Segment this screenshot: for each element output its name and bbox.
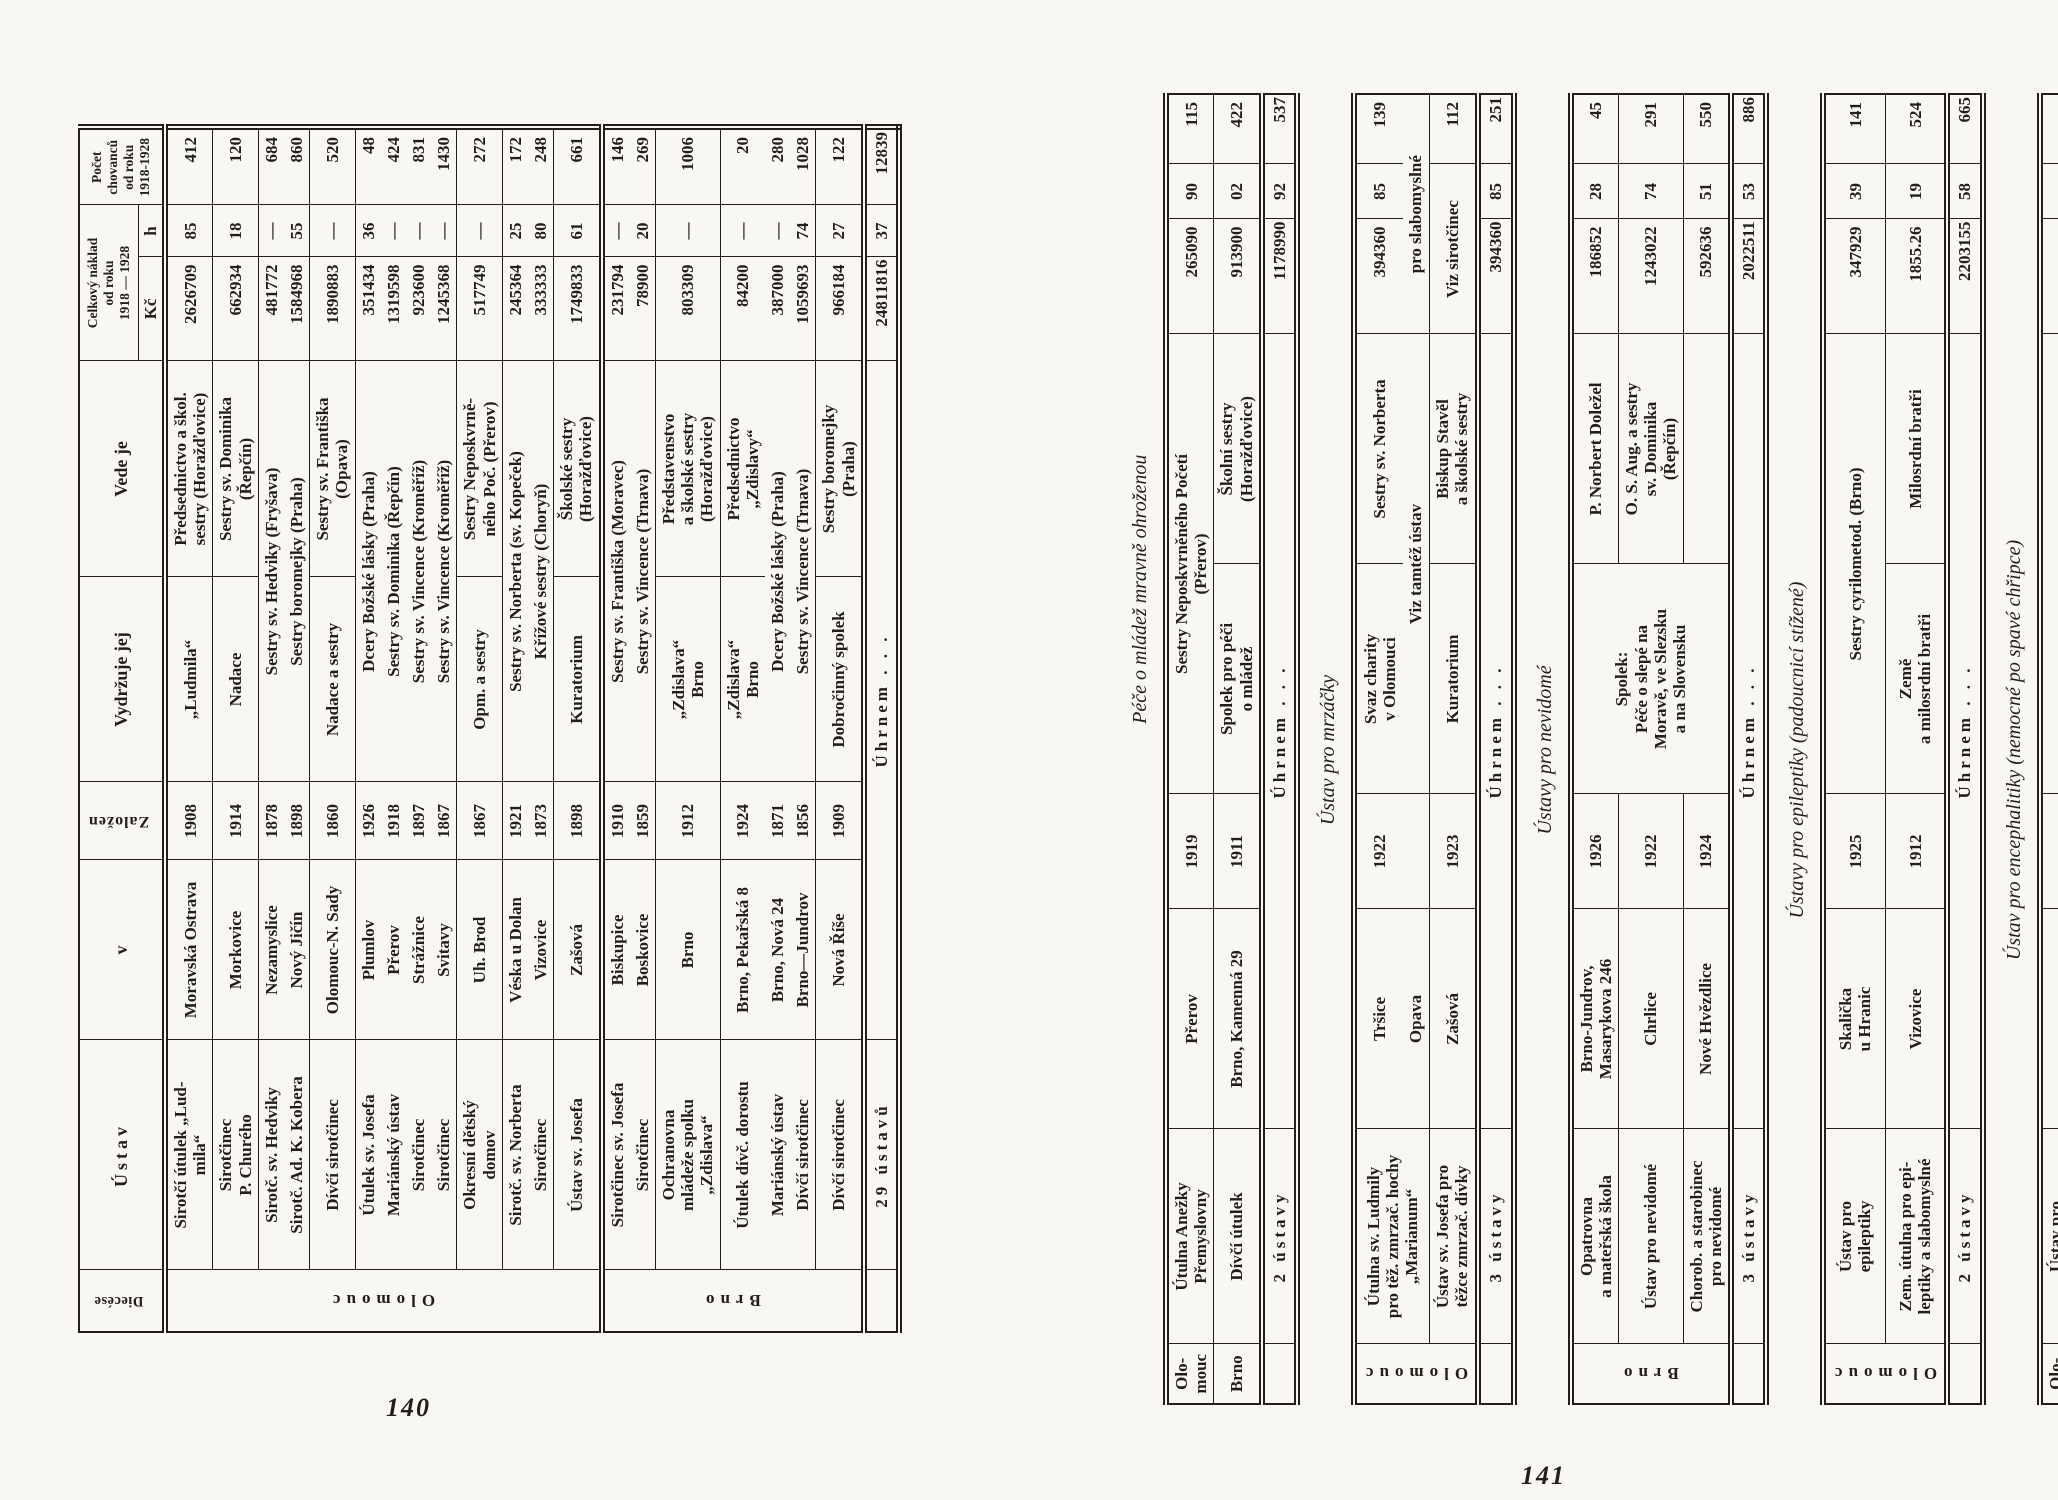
cell: 80	[528, 205, 554, 257]
cell: 186852	[1571, 219, 1619, 334]
cell: 966184	[816, 257, 864, 361]
total-label: Úhrnem . . .	[1262, 334, 1297, 1129]
cell: Školské sestry(Horažďovice)	[554, 361, 602, 577]
table-row: Dívčí sirotčinecOlomouc-N. Sady1860Nadac…	[310, 127, 355, 1332]
total-count: 29 ústavů	[864, 1040, 899, 1270]
cell: Kuratorium	[554, 577, 602, 782]
cell: 20	[720, 127, 765, 205]
section-title: Péče o mládež mravně ohroženou	[1128, 95, 1153, 1405]
table-row: SirotčinecBoskovice1859Sestry sv. Vincen…	[630, 127, 656, 1332]
cell: 1910	[602, 782, 630, 860]
cell: 1925	[1823, 794, 1885, 909]
encephalitis-institute-table: Olo-moucÚstav proencephalitikyVelehrad19…	[2037, 93, 2058, 1405]
cell: 248	[528, 127, 554, 205]
cell: Skaličkau Hranic	[1823, 909, 1885, 1129]
cell: 51	[1683, 164, 1731, 219]
cell	[1478, 1344, 1513, 1404]
cell: 831	[406, 127, 431, 205]
cell: —	[381, 205, 406, 257]
cell: Nezamyslice	[258, 860, 284, 1040]
table-row: OlomoucÚtulna sv. Ludmilypro těž. zmrzač…	[1354, 94, 1403, 1404]
cell: 1243022	[1618, 219, 1683, 334]
cell: Útulna AnežkyPřemyslovny	[1166, 1129, 1214, 1344]
cell: 265090	[1166, 219, 1214, 334]
cell: „Ludmila“	[165, 577, 213, 782]
cell: Mariánský ústav	[381, 1040, 406, 1270]
cell: Sirotč. sv. Norberta	[502, 1040, 528, 1270]
cell: O. S. Aug. a sestrysv. Dominika(Řepčín)	[1618, 334, 1683, 564]
cell: 1922	[1618, 794, 1683, 909]
table-row: Ústav sv. Josefa protěžce zmrzač. dívkyZ…	[1429, 94, 1478, 1404]
cell: Morkovice	[213, 860, 258, 1040]
total-pocet: 12839	[864, 127, 899, 205]
cell: 39	[1823, 164, 1885, 219]
rotated-label: Olomouc	[327, 1291, 435, 1310]
cell: Sestry sv. Norberta (sv. Kopeček)	[502, 361, 528, 782]
cell: 139	[1354, 94, 1403, 164]
rotated-label: Olomouc	[1829, 1364, 1937, 1383]
table-row: 3 ústavyÚhrnem . . .39436085251	[1478, 94, 1513, 1404]
cell: 84200	[720, 257, 765, 361]
cell: Sirotč. sv. Hedviky	[258, 1040, 284, 1270]
cell: 90	[1166, 164, 1214, 219]
cell: 860	[284, 127, 310, 205]
cell: Zašová	[1429, 909, 1478, 1129]
table-row: BrnoSirotčinec sv. JosefaBiskupice1910Se…	[602, 127, 630, 1332]
table-row: Mariánský ústavBrno, Nová 241871Dcery Bo…	[765, 127, 790, 1332]
table-row: Sirotč. sv. HedvikyNezamyslice1878Sestry…	[258, 127, 284, 1332]
cell: 424	[381, 127, 406, 205]
cell: Zem. útulna pro epi-leptiky a slabomysln…	[1885, 1129, 1947, 1344]
cell: Biskupice	[602, 860, 630, 1040]
cell: 19	[1885, 164, 1947, 219]
cell: Sirotčí útulek „Lud-mila“	[165, 1040, 213, 1270]
cell: 1908	[165, 782, 213, 860]
cell: 70	[2040, 94, 2058, 164]
cell: 1912	[1885, 794, 1947, 909]
cell	[1403, 794, 1429, 909]
cell: Opm. a sestry	[457, 577, 502, 782]
cell: Sestry sv. Františka(Opava)	[310, 361, 355, 577]
cell	[1262, 1344, 1297, 1404]
cell: 1921	[502, 782, 528, 860]
cell: 25	[502, 205, 528, 257]
cell: 61	[554, 205, 602, 257]
cell: Spolek:Péče o slepé naMoravě, ve Slezsku…	[1571, 564, 1731, 794]
cell: —	[2040, 164, 2058, 219]
cell: Zeměa milosrdní bratři	[1885, 564, 1947, 794]
table-row: OlomoucÚstav proepileptikySkaličkau Hran…	[1823, 94, 1885, 1404]
cell: 112	[1429, 94, 1478, 164]
cell: 1319598	[381, 257, 406, 361]
cell: 27	[816, 205, 864, 257]
cell: Vizovice	[528, 860, 554, 1040]
cell: 55	[284, 205, 310, 257]
cell: Přerov	[1166, 909, 1214, 1129]
cell: 1918	[381, 782, 406, 860]
cell: 1898	[284, 782, 310, 860]
left-table-mount: DiecéseÚstavvZaloženVydržuje jejVede jeC…	[78, 128, 902, 1333]
section-title: Ústavy pro epileptiky (padoucnicí stížen…	[1785, 95, 1810, 1405]
cell: Sestry Neposkvrně-ného Poč. (Přerov)	[457, 361, 502, 577]
cell: 550	[1683, 94, 1731, 164]
cell: Sestry cyrilometod. (Brno)	[1823, 334, 1885, 794]
total-label: Úhrnem . . .	[1478, 334, 1513, 1129]
cell: 1926	[1571, 794, 1619, 909]
cell: 1911	[1214, 794, 1262, 909]
table-row: Olo-moucÚstav proencephalitikyVelehrad19…	[2040, 94, 2058, 1404]
table-row: Zem. útulna pro epi-leptiky a slabomysln…	[1885, 94, 1947, 1404]
cell: Brno-Jundrov,Masarykova 246	[1571, 909, 1619, 1129]
col-header-zalozen: Založen	[79, 782, 165, 860]
cell: 141	[1823, 94, 1885, 164]
cell: Viz tamtéž ústav	[1403, 334, 1429, 794]
cell: 1856	[790, 782, 816, 860]
diocese-label: Olomouc	[1354, 1344, 1478, 1404]
cell: 1006	[656, 127, 721, 205]
cell: Svitavy	[431, 860, 457, 1040]
cell: Kuratorium	[1429, 564, 1478, 794]
cell: 269	[630, 127, 656, 205]
cell: Svaz charityv Olomouci	[1354, 564, 1403, 794]
cell: Sestry Neposkvrněného Početí(Přerov)	[1166, 334, 1214, 794]
cell: 85	[1354, 164, 1403, 219]
cell: Uh. Brod	[457, 860, 502, 1040]
cell: Představenstvoa školské sestry(Horažďovi…	[656, 361, 721, 577]
cell: 1178990	[1262, 219, 1297, 334]
diocese-label: Brno	[602, 1270, 864, 1332]
cell: Předsednictvo„Zdislavy“	[720, 361, 765, 577]
cell: Boskovice	[630, 860, 656, 1040]
table-row: Sirotč. Ad. K. KoberaNový Jičín1898Sestr…	[284, 127, 310, 1332]
cell: 592636	[1683, 219, 1731, 334]
cell: —	[720, 205, 765, 257]
table-row: Ochranovnamládeže spolku„Zdislava“Brno19…	[656, 127, 721, 1332]
cell: 291	[1618, 94, 1683, 164]
rotated-label: Olomouc	[1360, 1364, 1468, 1383]
cell: Sirotčinec	[528, 1040, 554, 1270]
total-label: Úhrnem . . .	[864, 361, 899, 1040]
table-row: Dívčí sirotčinecNová Říše1909Dobročinný …	[816, 127, 864, 1332]
cell: Nadace a sestry	[310, 577, 355, 782]
cell: 412	[165, 127, 213, 205]
rotated-label: Brno	[700, 1291, 761, 1310]
cell: Sirotčinec	[630, 1040, 656, 1270]
table-row: Dívčí sirotčinecBrno—Jundrov1856Sestry s…	[790, 127, 816, 1332]
table-row: OlomoucSirotčí útulek „Lud-mila“Moravská…	[165, 127, 213, 1332]
rotated-label: Založen	[88, 812, 149, 830]
total-h: 37	[864, 205, 899, 257]
cell: Sirotč. Ad. K. Kobera	[284, 1040, 310, 1270]
cell: 1914	[213, 782, 258, 860]
cell: Vizovice	[1885, 909, 1947, 1129]
col-header-vede: Vede je	[79, 361, 165, 577]
cell: 1890883	[310, 257, 355, 361]
cell: 85	[165, 205, 213, 257]
cell: 251	[1478, 94, 1513, 164]
table-row: DiecéseÚstavvZaloženVydržuje jejVede jeC…	[79, 127, 138, 1332]
cell: Dcery Božské lásky (Praha)	[765, 361, 790, 782]
col-header-pocet: Početchovancůod roku1918-1928	[79, 127, 165, 205]
cell: 45	[1571, 94, 1619, 164]
table-row: Útulek dívč. dorostuBrno, Pekařská 81924…	[720, 127, 765, 1332]
col-header-diecese: Diecése	[79, 1270, 165, 1332]
cell: Dívčí sirotčinec	[790, 1040, 816, 1270]
cell: Mariánský ústav	[765, 1040, 790, 1270]
cell: Nový Jičín	[284, 860, 310, 1040]
cell: Velehrad	[2040, 909, 2058, 1129]
cell	[1683, 334, 1731, 564]
cell: 662934	[213, 257, 258, 361]
table-row: Ústav sv. JosefaZašová1898KuratoriumŠkol…	[554, 127, 602, 1332]
cell: 1919	[1166, 794, 1214, 909]
cell: 1867	[431, 782, 457, 860]
cell: 684	[258, 127, 284, 205]
cell: 1430	[431, 127, 457, 205]
table-row: BrnoDívčí útulekBrno, Kamenná 291911Spol…	[1214, 94, 1262, 1404]
cell: Ústav sv. Josefa protěžce zmrzač. dívky	[1429, 1129, 1478, 1344]
cell: 537	[1262, 94, 1297, 164]
cell: —	[258, 205, 284, 257]
page-number-left: 140	[386, 1395, 431, 1421]
section-title: Ústavy pro nevidomé	[1533, 95, 1558, 1405]
col-header-kc: Kč	[138, 257, 165, 361]
cell: Brno, Pekařská 8	[720, 860, 765, 1040]
cell: —	[406, 205, 431, 257]
cell: Chrlice	[1618, 909, 1683, 1129]
cell: Brno, Nová 24	[765, 860, 790, 1040]
cell: 280	[765, 127, 790, 205]
cell: 1927	[2040, 794, 2058, 909]
diocese-label: Olomouc	[1823, 1344, 1947, 1404]
total-count: 3 ústavy	[1731, 1129, 1766, 1344]
cell: Plumlov	[355, 860, 381, 1040]
table-row: Mariánský ústavPřerov1918Sestry sv. Domi…	[381, 127, 406, 1332]
cell: Dívčí sirotčinec	[310, 1040, 355, 1270]
cell	[864, 1270, 899, 1332]
cell: Tršice	[1354, 909, 1403, 1129]
table-row: 2 ústavyÚhrnem . . .220315558665	[1947, 94, 1982, 1404]
cell: Dívčí útulek	[1214, 1129, 1262, 1344]
col-header-vydrzuje: Vydržuje jej	[79, 577, 165, 782]
cell: Sestry sv. Vincence (Kroměříž)	[431, 361, 457, 782]
table-row: SirotčinecSvitavy1867Sestry sv. Vincence…	[431, 127, 457, 1332]
cell: Sirotčinec	[431, 1040, 457, 1270]
cell: 1912	[656, 782, 721, 860]
cell: Véska u Dolan	[502, 860, 528, 1040]
cell: „Zdislava“Brno	[720, 577, 765, 782]
cell	[1731, 1344, 1766, 1404]
cell: 665	[1947, 94, 1982, 164]
cell: 1860	[310, 782, 355, 860]
cell: —	[765, 205, 790, 257]
cell: 48	[355, 127, 381, 205]
total-label: Úhrnem . . .	[1947, 334, 1982, 1129]
cell: 74	[1618, 164, 1683, 219]
total-count: 2 ústavy	[1262, 1129, 1297, 1344]
table-row: SirotčinecVizovice1873Křížové sestry (Ch…	[528, 127, 554, 1332]
cell: 333333	[528, 257, 554, 361]
epileptics-institutes-table: OlomoucÚstav proepileptikySkaličkau Hran…	[1820, 93, 1986, 1405]
cell: pro slabomyslné	[1403, 94, 1429, 334]
cell: Dívčí sirotčinec	[816, 1040, 864, 1270]
diocese-label: Brno	[1214, 1344, 1262, 1404]
cell: 1898	[554, 782, 602, 860]
cell	[1947, 1344, 1982, 1404]
cell: 1878	[258, 782, 284, 860]
cell: 394360	[1478, 219, 1513, 334]
cell: 2626709	[165, 257, 213, 361]
cell: 78900	[630, 257, 656, 361]
cell: Sirotčinec sv. Josefa	[602, 1040, 630, 1270]
cell: Nové Hvězdlice	[1683, 909, 1731, 1129]
col-header-ustav: Ústav	[79, 1040, 165, 1270]
cell: Brno—Jundrov	[790, 860, 816, 1040]
cell: 1873	[528, 782, 554, 860]
cell: 18	[213, 205, 258, 257]
cell: Opava	[1403, 909, 1429, 1129]
cell: 1859	[630, 782, 656, 860]
table-row: Útulek sv. JosefaPlumlov1926Dcery Božské…	[355, 127, 381, 1332]
table-row: 3 ústavyÚhrnem . . .202251153886	[1731, 94, 1766, 1404]
table-row: Okresní dětskýdomovUh. Brod1867Opm. a se…	[457, 127, 502, 1332]
cell: 115	[1166, 94, 1214, 164]
cell: Moravská Ostrava	[165, 860, 213, 1040]
cell: 422	[1214, 94, 1262, 164]
cripples-institute-table: OlomoucÚtulna sv. Ludmilypro těž. zmrzač…	[1351, 93, 1517, 1405]
cell: 20	[630, 205, 656, 257]
book-scan-spread: { "colors": { "paper": "#f9f7f2", "ink":…	[0, 0, 2058, 1500]
cell: Spolek pro péčio mládež	[1214, 564, 1262, 794]
table-row: SirotčinecStrážnice1897Sestry sv. Vincen…	[406, 127, 431, 1332]
cell: Ústav proencephalitiky	[2040, 1129, 2058, 1344]
cell: Útulek dívč. dorostu	[720, 1040, 765, 1270]
section-title: Ústav pro mrzáčky	[1316, 95, 1341, 1405]
cell: Milosrdní bratři	[1885, 334, 1947, 564]
cell: 351434	[355, 257, 381, 361]
cell: —	[457, 205, 502, 257]
cell: Dcery Božské lásky (Praha)	[355, 361, 381, 782]
diocese-label: Olo-mouc	[1166, 1344, 1214, 1404]
table-row: SirotčinecP. ChuréhoMorkovice1914NadaceS…	[213, 127, 258, 1332]
cell: 36	[355, 205, 381, 257]
cell: 1924	[1683, 794, 1731, 909]
cell: 803309	[656, 257, 721, 361]
cell: 1584968	[284, 257, 310, 361]
cell: Sestry sv. Vincence (Kroměříž)	[406, 361, 431, 782]
cell: Sestry sv. Dominika (Řepčín)	[381, 361, 406, 782]
cell: Sestry sv. Vincence (Trnava)	[790, 361, 816, 782]
cell: 1028	[790, 127, 816, 205]
rotated-label: Brno	[1618, 1364, 1679, 1383]
cell: 394360	[1354, 219, 1403, 334]
cell: 520	[310, 127, 355, 205]
orphanages-table: DiecéseÚstavvZaloženVydržuje jejVede jeC…	[78, 124, 902, 1333]
cell: 172	[502, 127, 528, 205]
cell: Sestry boromejky(Praha)	[816, 361, 864, 577]
cell: 913900	[1214, 219, 1262, 334]
cell: 53	[1731, 164, 1766, 219]
col-header-misto: v	[79, 860, 165, 1040]
cell: —	[656, 205, 721, 257]
cell: SirotčinecP. Churého	[213, 1040, 258, 1270]
cell: 58	[1947, 164, 1982, 219]
cell: Sirotčinec	[406, 1040, 431, 1270]
cell: 150320	[2040, 219, 2058, 334]
cell: Křížové sestry (Choryň)	[528, 361, 554, 782]
col-header-naklad: Celkový nákladod roku1918 — 1928	[79, 205, 138, 361]
rotated-label: Diecése	[94, 1293, 143, 1309]
total-label: Úhrnem . . .	[1731, 334, 1766, 1129]
cell: 92	[1262, 164, 1297, 219]
cell: Olomouc-N. Sady	[310, 860, 355, 1040]
cell: P. Norbert Doležel	[1571, 334, 1619, 564]
cell: Viz sirotčinec	[1429, 164, 1478, 334]
cell: Přerov	[381, 860, 406, 1040]
cell: 387000	[765, 257, 790, 361]
table-row: Sirotč. sv. NorbertaVéska u Dolan1921Ses…	[502, 127, 528, 1332]
cell: Opatrovnaa mateřská škola	[1571, 1129, 1619, 1344]
cell: 74	[790, 205, 816, 257]
cell: 1245368	[431, 257, 457, 361]
cell: 146	[602, 127, 630, 205]
total-kc: 24811816	[864, 257, 899, 361]
cell: 1867	[457, 782, 502, 860]
blind-institutes-table: BrnoOpatrovnaa mateřská školaBrno-Jundro…	[1568, 93, 1770, 1405]
table-row: 29 ústavůÚhrnem . . .248118163712839	[864, 127, 899, 1332]
cell: Sestry boromejky (Praha)	[284, 361, 310, 782]
cell: Ochranovnamládeže spolku„Zdislava“	[656, 1040, 721, 1270]
cell: 245364	[502, 257, 528, 361]
cell: 1926	[355, 782, 381, 860]
cell: 2203155	[1947, 219, 1982, 334]
cell: 1855.26	[1885, 219, 1947, 334]
cell: 122	[816, 127, 864, 205]
cell: Sestry sv. Vincence (Trnava)	[630, 361, 656, 782]
cell: Sestry sv. Norberta	[1354, 334, 1403, 564]
cell: Biskup Stavěla školské sestry	[1429, 334, 1478, 564]
cell: Sestry sv. Hedviky (Fryšava)	[258, 361, 284, 782]
cell: 1871	[765, 782, 790, 860]
cell: 923600	[406, 257, 431, 361]
table-row: Olo-moucÚtulna AnežkyPřemyslovnyPřerov19…	[1166, 94, 1214, 1404]
cell: Útulna sv. Ludmilypro těž. zmrzač. hochy…	[1354, 1129, 1429, 1344]
cell: 1897	[406, 782, 431, 860]
section-title: Ústav pro encephalitiky (nemocné po spav…	[2002, 95, 2027, 1405]
cell: 1924	[720, 782, 765, 860]
cell: 272	[457, 127, 502, 205]
cell: 28	[1571, 164, 1619, 219]
cell: 2022511	[1731, 219, 1766, 334]
cell: Ústav sv. Josefa	[554, 1040, 602, 1270]
cell: Zašová	[554, 860, 602, 1040]
cell: 231794	[602, 257, 630, 361]
cell: 347929	[1823, 219, 1885, 334]
cell: 1749833	[554, 257, 602, 361]
cell: Útulek sv. Josefa	[355, 1040, 381, 1270]
table-row: 2 ústavyÚhrnem . . .117899092537	[1262, 94, 1297, 1404]
cell: Nová Říše	[816, 860, 864, 1040]
cell: 1923	[1429, 794, 1478, 909]
cell: 661	[554, 127, 602, 205]
endangered-youth-table: Olo-moucÚtulna AnežkyPřemyslovnyPřerov19…	[1163, 93, 1300, 1405]
cell: Okresní dětskýdomov	[457, 1040, 502, 1270]
left-rotated-table-area: DiecéseÚstavvZaloženVydržuje jejVede jeC…	[78, 128, 930, 1333]
total-count: 2 ústavy	[1947, 1129, 1982, 1344]
cell: 1909	[816, 782, 864, 860]
total-count: 3 ústavy	[1478, 1129, 1513, 1344]
cell: 1922	[1354, 794, 1403, 909]
